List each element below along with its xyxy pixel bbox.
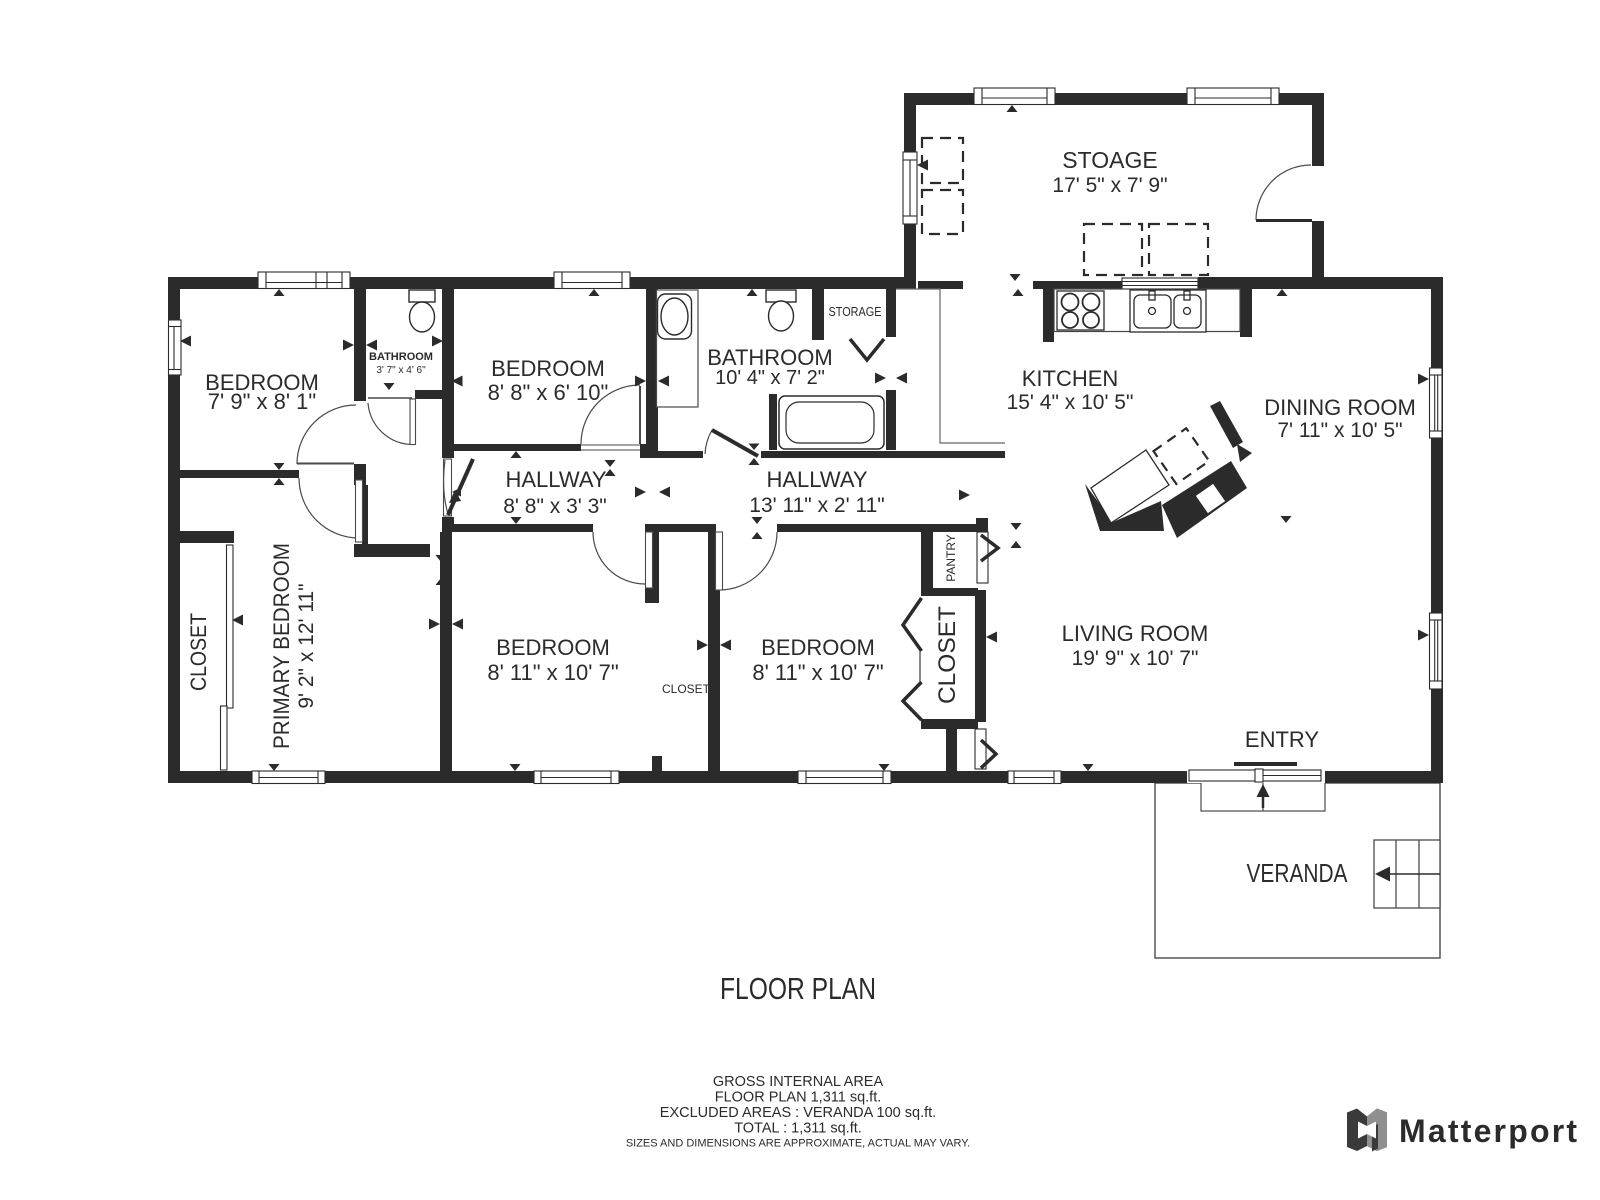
svg-text:TOTAL : 1,311 sq.ft.: TOTAL : 1,311 sq.ft. (734, 1121, 862, 1137)
svg-text:15' 4" x 10' 5": 15' 4" x 10' 5" (1007, 391, 1134, 414)
svg-text:VERANDA: VERANDA (1247, 858, 1349, 888)
svg-text:LIVING ROOM: LIVING ROOM (1062, 621, 1209, 646)
svg-text:19' 9" x 10' 7": 19' 9" x 10' 7" (1072, 647, 1199, 670)
svg-text:9' 2" x 12' 11": 9' 2" x 12' 11" (295, 583, 318, 708)
svg-text:3' 7" x 4' 6": 3' 7" x 4' 6" (376, 365, 426, 376)
svg-text:EXCLUDED AREAS : VERANDA 100: EXCLUDED AREAS : VERANDA 100 sq.ft. (660, 1105, 936, 1121)
svg-text:CLOSET: CLOSET (934, 606, 961, 704)
svg-text:FLOOR PLAN: FLOOR PLAN (720, 971, 876, 1006)
svg-text:STORAGE: STORAGE (829, 305, 882, 319)
svg-text:CLOSET: CLOSET (186, 613, 211, 691)
svg-text:PRIMARY BEDROOM: PRIMARY BEDROOM (269, 543, 294, 749)
svg-text:STOAGE: STOAGE (1062, 147, 1157, 173)
svg-text:13' 11" x 2' 11": 13' 11" x 2' 11" (749, 494, 884, 517)
svg-text:BATHROOM: BATHROOM (369, 351, 433, 363)
svg-text:HALLWAY: HALLWAY (766, 467, 867, 492)
svg-text:GROSS INTERNAL AREA: GROSS INTERNAL AREA (713, 1074, 884, 1090)
svg-text:PANTRY: PANTRY (944, 534, 958, 582)
svg-text:HALLWAY: HALLWAY (505, 467, 606, 492)
svg-text:DINING ROOM: DINING ROOM (1264, 395, 1416, 420)
svg-text:7' 11" x 10' 5": 7' 11" x 10' 5" (1277, 419, 1402, 442)
svg-text:BEDROOM: BEDROOM (761, 635, 875, 660)
svg-text:8' 8" x 6' 10": 8' 8" x 6' 10" (488, 380, 609, 405)
svg-text:SIZES AND DIMENSIONS ARE APPRO: SIZES AND DIMENSIONS ARE APPROXIMATE, AC… (626, 1138, 970, 1150)
svg-text:ENTRY: ENTRY (1245, 727, 1319, 752)
svg-text:FLOOR PLAN 1,311 sq.ft.: FLOOR PLAN 1,311 sq.ft. (715, 1090, 882, 1106)
svg-text:BEDROOM: BEDROOM (496, 635, 610, 660)
svg-text:BEDROOM: BEDROOM (491, 356, 605, 381)
svg-text:10' 4" x 7' 2": 10' 4" x 7' 2" (715, 367, 825, 389)
svg-text:Matterport: Matterport (1399, 1113, 1579, 1149)
svg-text:KITCHEN: KITCHEN (1022, 366, 1119, 391)
svg-text:8' 11" x 10' 7": 8' 11" x 10' 7" (752, 660, 883, 685)
svg-text:8' 11" x 10' 7": 8' 11" x 10' 7" (487, 660, 618, 685)
svg-text:7' 9" x 8' 1": 7' 9" x 8' 1" (208, 389, 316, 414)
svg-text:CLOSET: CLOSET (662, 682, 711, 696)
svg-text:17' 5" x 7' 9": 17' 5" x 7' 9" (1052, 174, 1167, 197)
svg-text:8' 8" x 3' 3": 8' 8" x 3' 3" (503, 495, 606, 518)
